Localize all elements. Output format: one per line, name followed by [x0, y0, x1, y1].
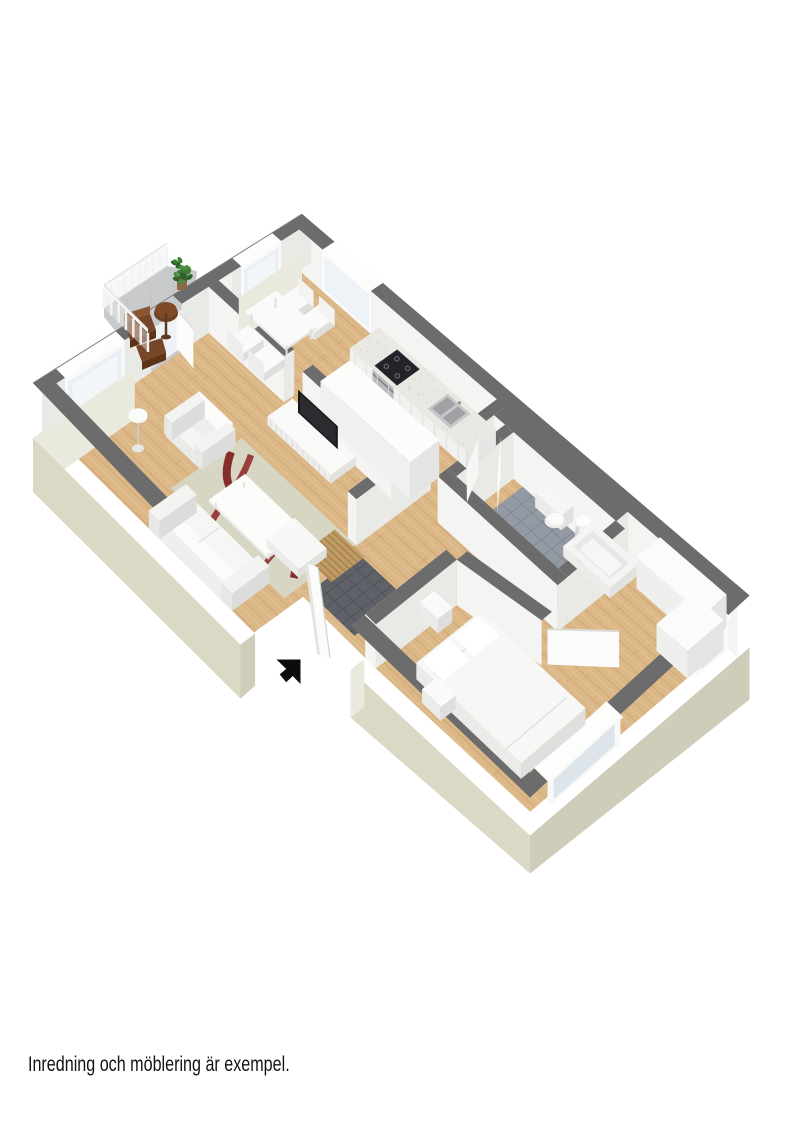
- svg-text:Inredning och möblering är exe: Inredning och möblering är exempel.: [28, 1053, 290, 1077]
